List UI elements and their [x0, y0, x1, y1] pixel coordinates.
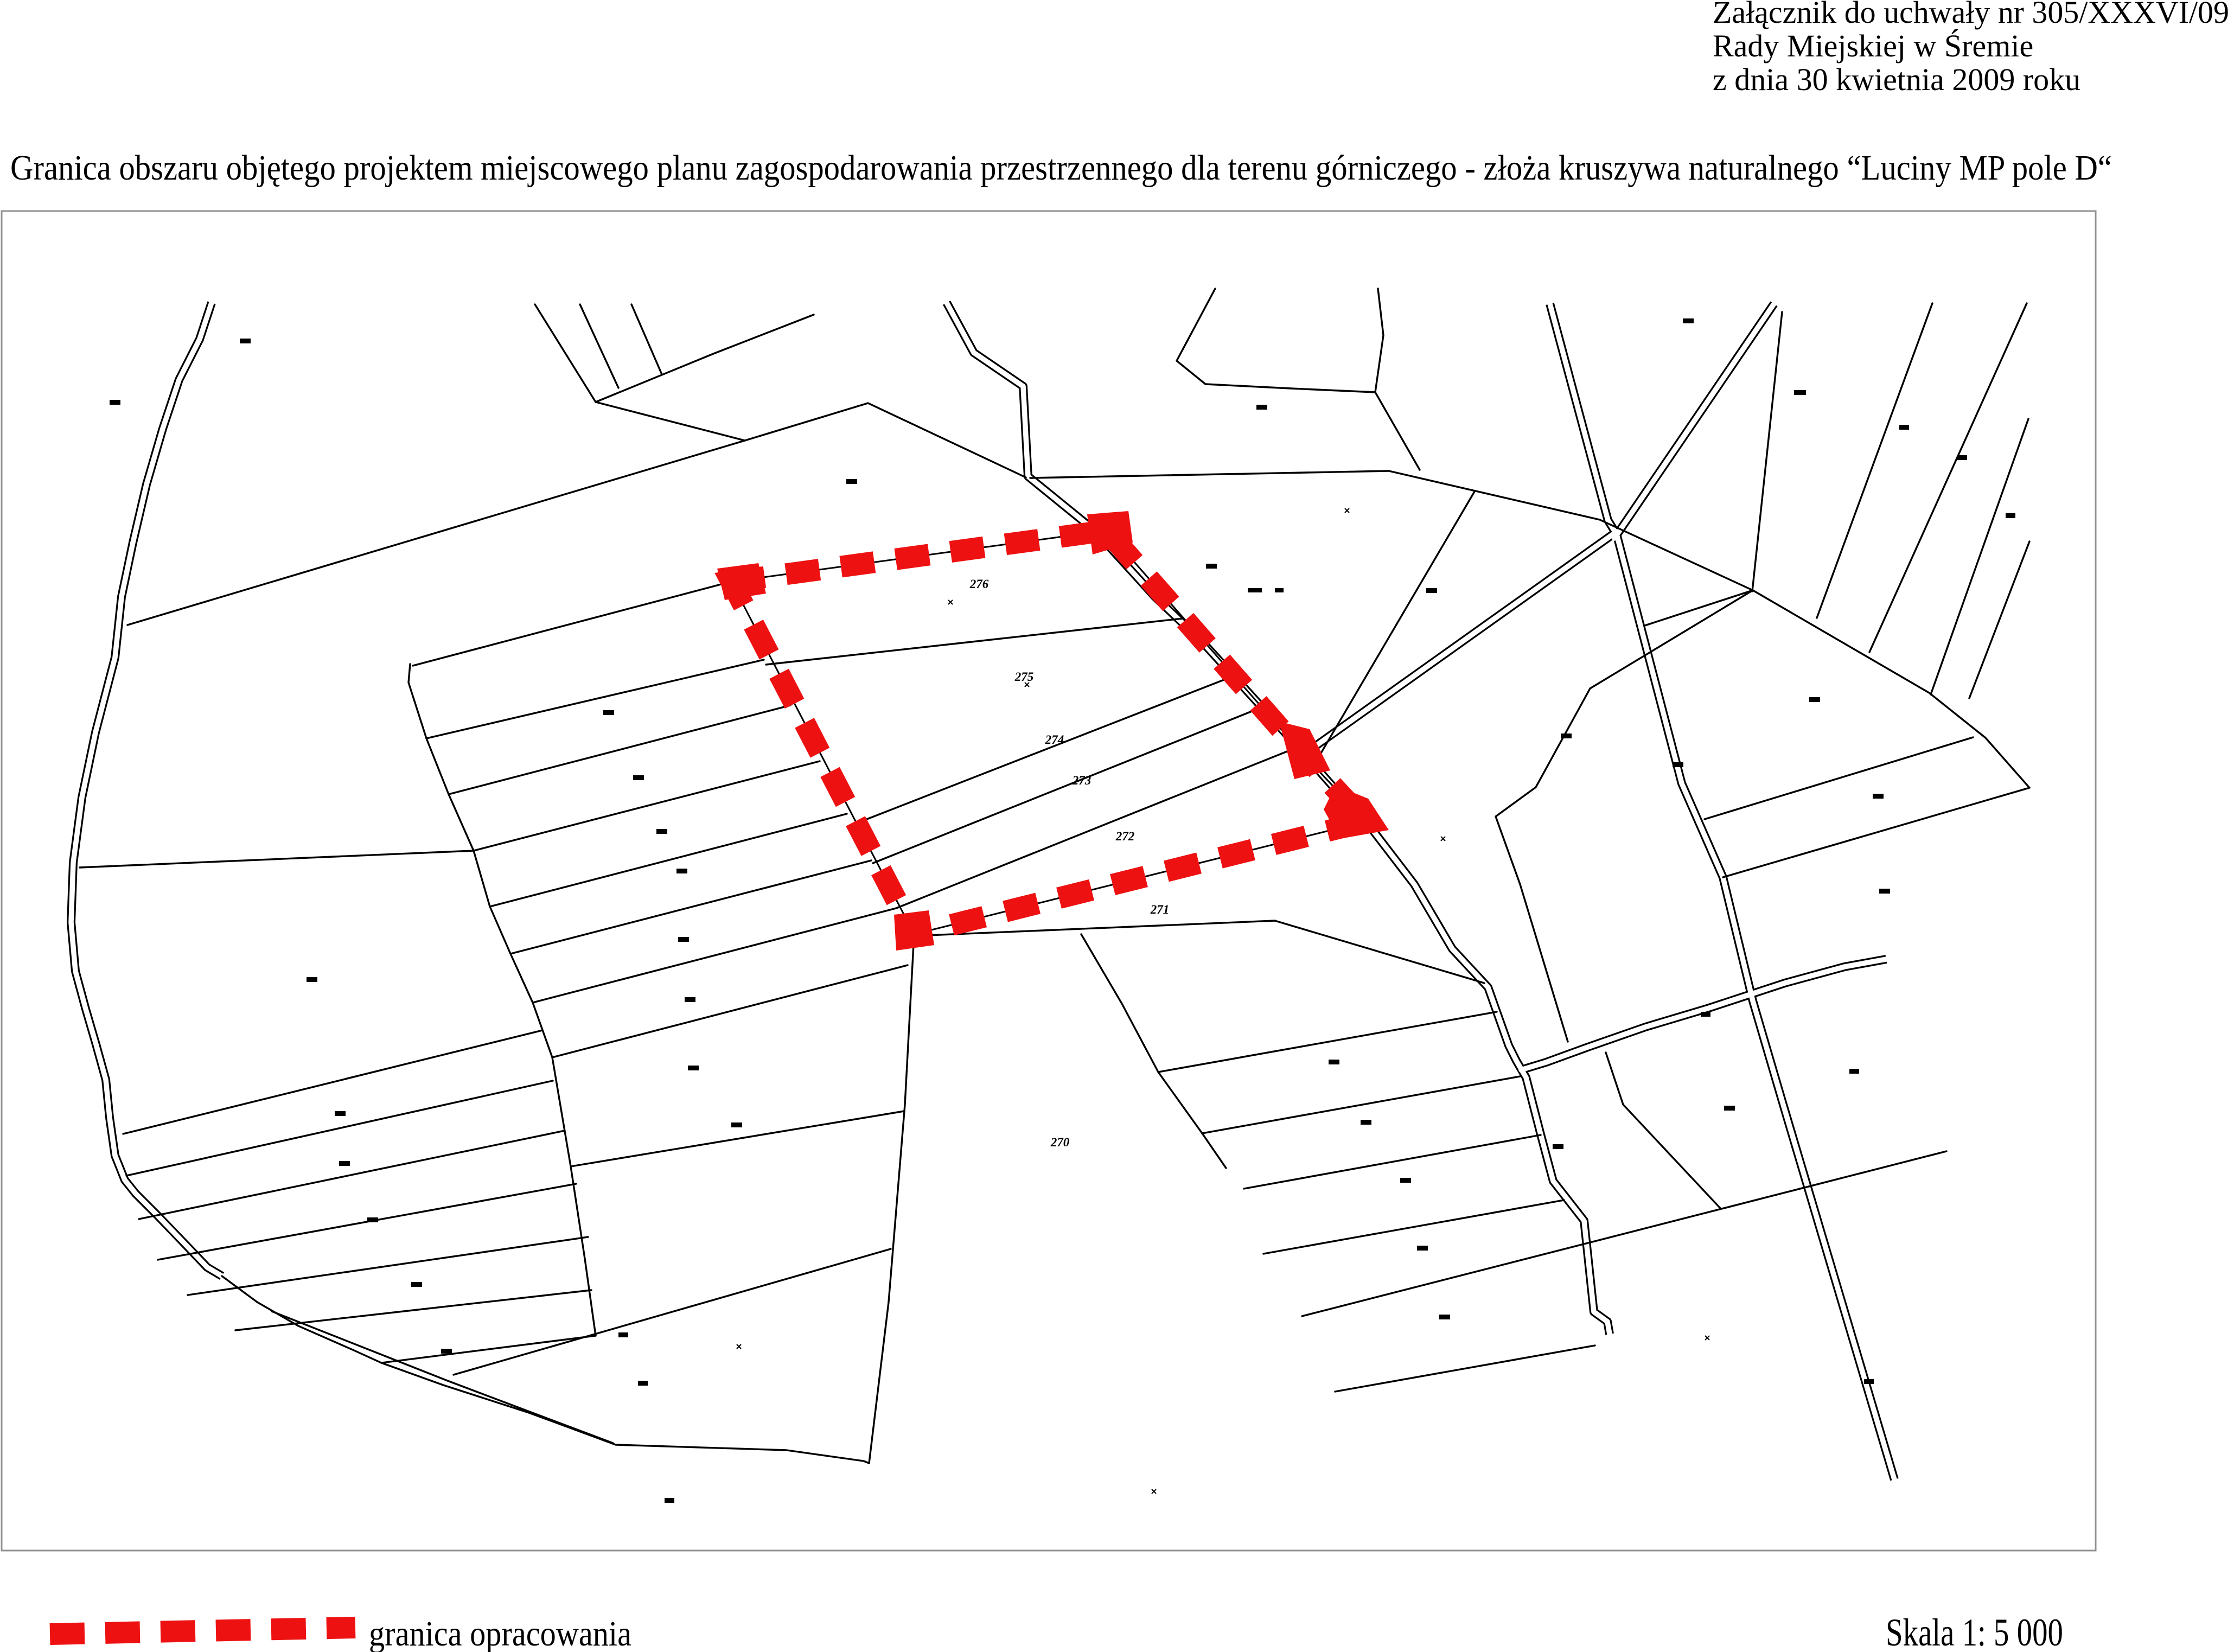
svg-text:granica opracowania: granica opracowania	[369, 1614, 631, 1652]
svg-text:272: 272	[1115, 830, 1135, 843]
svg-text:271: 271	[1150, 903, 1170, 916]
svg-text:z dnia 30 kwietnia 2009 roku: z dnia 30 kwietnia 2009 roku	[1713, 62, 2080, 97]
svg-text:Rady Miejskiej w Śremie: Rady Miejskiej w Śremie	[1713, 28, 2033, 63]
svg-text:Załącznik do uchwały nr 305/XX: Załącznik do uchwały nr 305/XXXVI/09	[1713, 0, 2229, 30]
svg-text:274: 274	[1045, 733, 1064, 747]
svg-text:276: 276	[969, 577, 989, 591]
svg-text:Granica obszaru objętego proje: Granica obszaru objętego projektem miejs…	[10, 148, 2112, 188]
svg-text:Skala 1: 5 000: Skala 1: 5 000	[1886, 1611, 2063, 1652]
svg-text:270: 270	[1050, 1136, 1070, 1149]
svg-text:273: 273	[1072, 774, 1092, 787]
svg-text:275: 275	[1014, 670, 1034, 684]
